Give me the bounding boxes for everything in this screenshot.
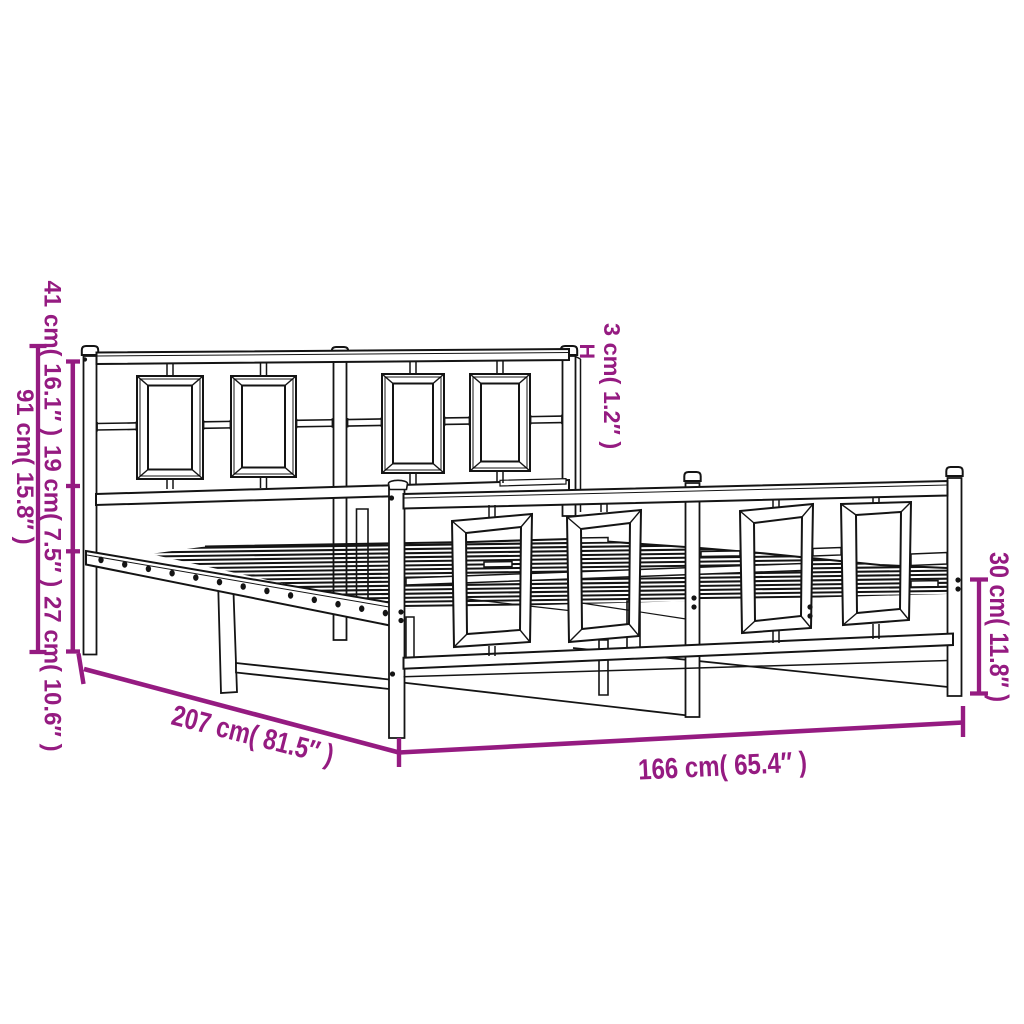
svg-text:3 cm( 1.2″ ): 3 cm( 1.2″ ) [599, 323, 625, 449]
svg-text:27 cm( 10.6″ ): 27 cm( 10.6″ ) [39, 596, 66, 752]
svg-text:30 cm( 11.8″ ): 30 cm( 11.8″ ) [984, 552, 1014, 702]
svg-text:41 cm( 16.1″ ): 41 cm( 16.1″ ) [39, 281, 66, 437]
svg-text:91 cm( 15.8″ ): 91 cm( 15.8″ ) [11, 389, 38, 545]
svg-text:19 cm( 7.5″ ): 19 cm( 7.5″ ) [39, 445, 66, 587]
svg-text:H: H [575, 344, 599, 360]
